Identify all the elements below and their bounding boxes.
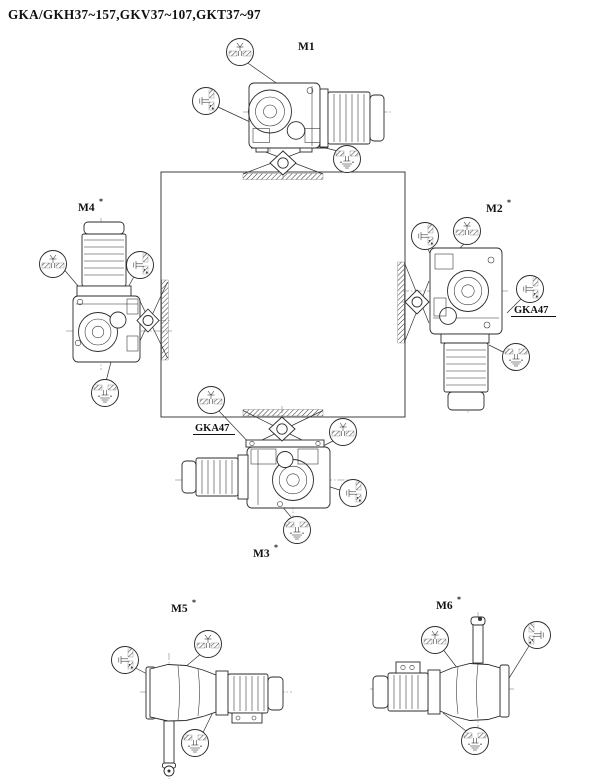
m2-gka47-annotation: GKA47: [514, 305, 548, 316]
m1-gearbox: [249, 83, 329, 152]
oil-level-plug-gka47-icon: [517, 276, 544, 303]
m1-drawing: M1: [193, 39, 394, 180]
cube-bottom-mount-surface: [243, 410, 323, 417]
page-title: GKA/GKH37~157,GKV37~107,GKT37~97: [8, 7, 261, 22]
cube-right-mount-surface: [398, 262, 405, 343]
m5-drawing: M5 *: [112, 598, 293, 779]
oil-level-plug-icon: [524, 622, 551, 649]
m3-gka47-annotation: GKA47: [195, 423, 229, 434]
m6-motor: [373, 662, 440, 714]
m2-gearbox: [430, 248, 502, 334]
breather-plug-icon: [227, 39, 254, 66]
oil-level-plug-icon: [193, 88, 220, 115]
breather-plug-icon: [40, 251, 67, 278]
breather-plug-icon: [454, 218, 481, 245]
oil-drain-plug-icon: [284, 517, 311, 544]
m4-motor: [77, 222, 131, 296]
oil-drain-plug-icon: [503, 344, 530, 371]
oil-drain-plug-icon: [334, 146, 361, 173]
mounting-cube: [161, 172, 405, 417]
breather-plug-gka47-icon: [198, 387, 225, 414]
m2-label: M2: [486, 203, 503, 215]
mounting-positions-diagram: GKA/GKH37~157,GKV37~107,GKT37~97: [0, 0, 600, 783]
m3-gearbox: [246, 440, 330, 508]
m2-motor: [441, 334, 489, 410]
breather-plug-icon: [422, 627, 449, 654]
m6-output-shaft: [473, 623, 483, 663]
m2-output-flange: [405, 290, 429, 314]
m5-label: M5: [171, 603, 188, 615]
diagram-svg: GKA/GKH37~157,GKV37~107,GKT37~97: [0, 0, 600, 783]
breather-plug-icon: [330, 419, 357, 446]
m3-marker: *: [274, 543, 278, 552]
m2-marker: *: [507, 198, 511, 207]
oil-drain-plug-icon: [462, 728, 489, 755]
oil-level-plug-icon: [112, 647, 139, 674]
m5-output-shaft: [164, 721, 174, 763]
m6-drawing: M6 *: [370, 595, 551, 755]
oil-level-plug-icon: [412, 223, 439, 250]
oil-level-plug-icon: [340, 480, 367, 507]
breather-plug-icon: [195, 631, 222, 658]
m3-motor: [182, 455, 248, 499]
m4-gearbox: [73, 296, 140, 362]
oil-level-plug-icon: [127, 252, 154, 279]
m4-drawing: M4 *: [40, 197, 173, 407]
oil-drain-plug-icon: [92, 380, 119, 407]
m1-label: M1: [298, 41, 315, 53]
m5-gearbox: [146, 665, 216, 777]
m5-motor: [216, 671, 283, 723]
m3-label: M3: [253, 548, 270, 560]
m1-output-flange: [270, 151, 296, 175]
m5-marker: *: [192, 598, 196, 607]
m4-label: M4: [78, 202, 95, 214]
oil-drain-plug-icon: [182, 730, 209, 757]
m6-marker: *: [457, 595, 461, 604]
m1-motor: [320, 89, 384, 147]
m6-label: M6: [436, 600, 453, 612]
m2-drawing: M2 * GKA47: [401, 198, 556, 414]
m6-gearbox: [440, 617, 509, 721]
m4-marker: *: [99, 197, 103, 206]
m3-output-flange: [269, 417, 295, 441]
